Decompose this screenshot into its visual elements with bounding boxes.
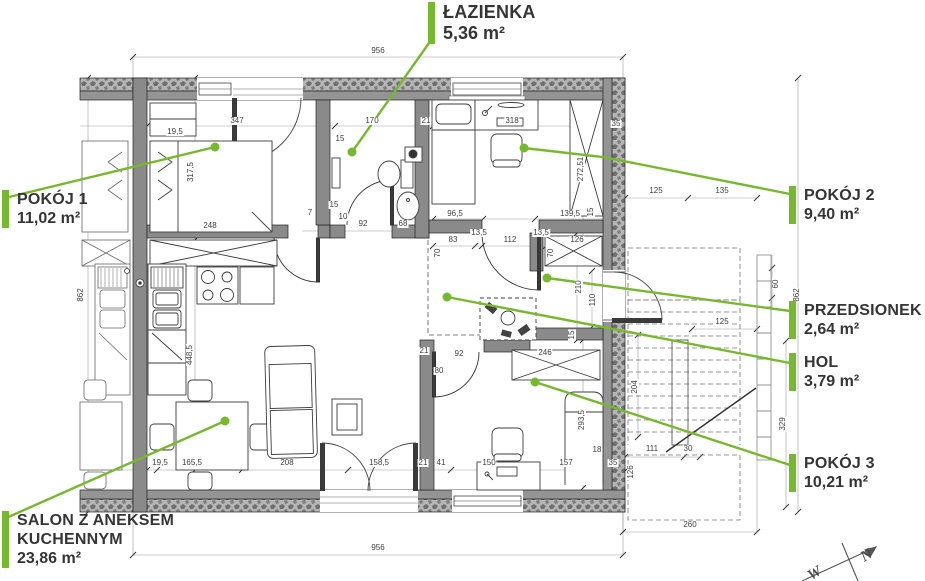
entrance-door-leaf: [612, 318, 662, 323]
desk-pokoj3: [477, 428, 540, 490]
room-label-lazienka: ŁAZIENKA 5,36 m²: [428, 2, 536, 44]
wardrobe-pokoj3: [512, 350, 600, 380]
leader-bar: [789, 186, 796, 224]
leader-przedsionek: [547, 278, 790, 311]
room-area: 2,64 m²: [804, 320, 922, 339]
room-area: 3,79 m²: [804, 372, 859, 391]
room-name: HOL: [804, 353, 859, 372]
wardrobe-pokoj2: [570, 100, 603, 216]
outdoor-stairs: [628, 248, 771, 520]
room-name: POKÓJ 3: [804, 454, 875, 473]
bathroom-fixtures: [332, 147, 422, 220]
leader-pokoj2: [524, 148, 790, 194]
furniture: [148, 100, 603, 490]
room-area: 11,02 m²: [17, 209, 88, 228]
bed-pokoj2: [432, 100, 475, 204]
room-label-pokoj2: POKÓJ 2 9,40 m²: [789, 186, 875, 224]
room-label-pokoj3: POKÓJ 3 10,21 m²: [789, 454, 875, 492]
room-label-pokoj1: POKÓJ 1 11,02 m²: [2, 190, 88, 228]
party-wall: [133, 78, 147, 512]
leader-bar: [2, 511, 9, 568]
bed-pokoj1: [150, 141, 272, 232]
entrance-door-opening: [603, 270, 625, 322]
room-name: ŁAZIENKA: [443, 2, 536, 23]
dining-set: [150, 380, 274, 490]
room-label-salon: SALON Z ANEKSEM KUCHENNYM 23,86 m²: [2, 511, 195, 568]
room-label-przedsionek: PRZEDSIONEK 2,64 m²: [789, 301, 922, 339]
room-area: 23,86 m²: [17, 549, 195, 568]
leader-bar: [428, 2, 435, 44]
room-name: POKÓJ 1: [17, 190, 88, 209]
leader-bar: [789, 454, 796, 492]
room-name: SALON Z ANEKSEM KUCHENNYM: [17, 511, 195, 549]
wardrobe-salon: [150, 240, 277, 266]
room-name: PRZEDSIONEK: [804, 301, 922, 320]
leader-bar: [789, 353, 796, 391]
compass: [802, 543, 876, 581]
floor-plan-canvas: 95619,5347170213183515317,524896,5139,51…: [0, 0, 925, 581]
sofa: [265, 345, 318, 458]
room-name: POKÓJ 2: [804, 186, 875, 205]
leader-bar: [789, 301, 796, 339]
wardrobe-przedsionek: [545, 236, 602, 266]
room-area: 5,36 m²: [443, 23, 536, 44]
kitchen: [148, 264, 274, 395]
room-area: 9,40 m²: [804, 205, 875, 224]
leader-bar: [2, 190, 9, 228]
room-area: 10,21 m²: [804, 473, 875, 492]
plan-drawing: [0, 0, 925, 581]
desk-pokoj2: [475, 100, 538, 167]
bed-pokoj3: [565, 392, 603, 485]
dresser-pokoj1: [150, 103, 196, 136]
room-label-hol: HOL 3,79 m²: [789, 353, 859, 391]
